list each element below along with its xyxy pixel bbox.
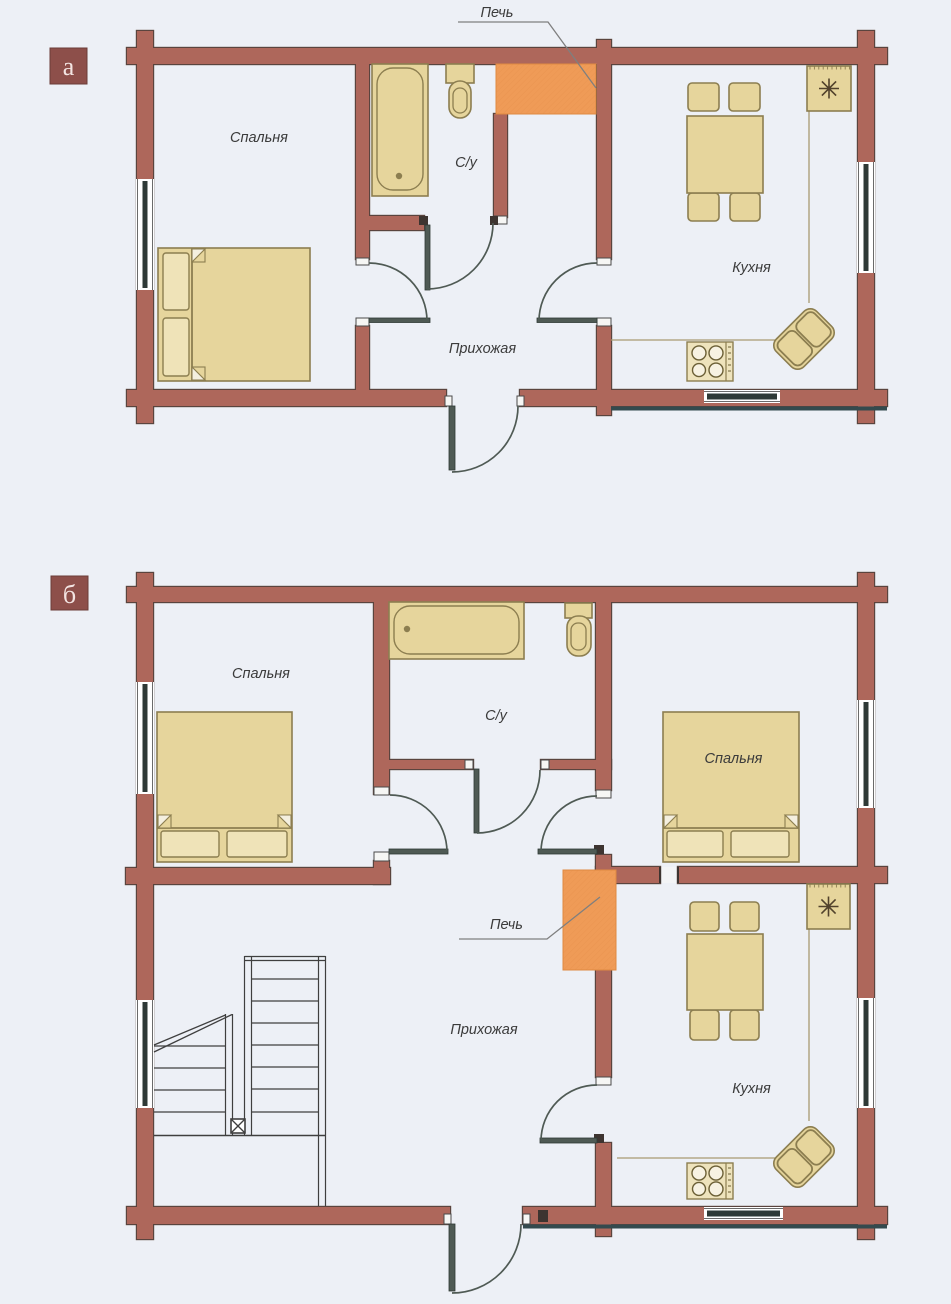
svg-text:Спальня: Спальня: [230, 130, 288, 146]
svg-text:Спальня: Спальня: [705, 751, 763, 767]
svg-text:Прихожая: Прихожая: [449, 341, 517, 357]
svg-text:Печь: Печь: [490, 917, 523, 933]
svg-text:С/у: С/у: [455, 155, 478, 171]
svg-text:Кухня: Кухня: [732, 1081, 771, 1097]
svg-text:а: а: [63, 52, 75, 81]
svg-text:Печь: Печь: [481, 5, 514, 21]
svg-text:Прихожая: Прихожая: [450, 1022, 518, 1038]
svg-text:б: б: [63, 580, 76, 609]
svg-text:Спальня: Спальня: [232, 666, 290, 682]
svg-text:С/у: С/у: [485, 708, 508, 724]
svg-text:Кухня: Кухня: [732, 260, 771, 276]
